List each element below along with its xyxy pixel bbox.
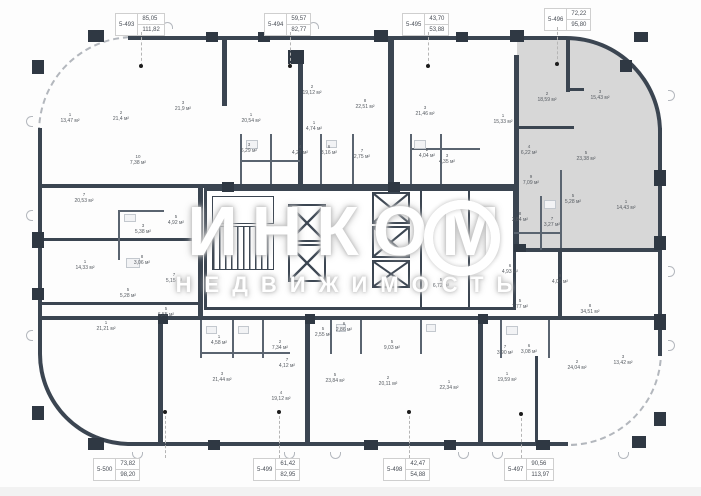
staircase-hatch <box>212 226 274 270</box>
room-area: 21,4 м² <box>99 116 143 122</box>
room-area: 4,05 м² <box>538 279 582 285</box>
vent-icon <box>330 452 341 459</box>
callout-anchor-dot <box>426 64 430 68</box>
wall-thin <box>118 210 164 212</box>
column <box>510 30 524 42</box>
column <box>222 182 234 192</box>
building-corner-top-right <box>556 36 662 132</box>
room-label: 114,33 м² <box>63 259 107 271</box>
bottom-strip <box>0 487 701 496</box>
room-label: 218,59 м² <box>525 91 569 103</box>
room-area: 7,38 м² <box>116 160 160 166</box>
room-area: 20,54 м² <box>229 118 273 124</box>
unit-total-area: 54,88 <box>406 470 429 480</box>
room-label: 74,12 м² <box>265 357 309 369</box>
room-label: 121,21 м² <box>84 320 128 332</box>
vent-icon <box>26 116 33 127</box>
unit-living-area: 43,70 <box>425 14 448 25</box>
room-label: 63,08 м² <box>507 343 551 355</box>
room-area: 20,53 м² <box>62 198 106 204</box>
bath-fixture-icon <box>238 326 249 334</box>
room-label: 120,54 м² <box>229 112 273 124</box>
room-area: 4,35 м² <box>425 159 469 165</box>
room-area: 14,43 м² <box>604 205 648 211</box>
room-label: 94,05 м² <box>538 273 582 285</box>
wall <box>38 316 660 320</box>
room-area: 21,46 м² <box>403 111 447 117</box>
column <box>478 314 488 324</box>
wall-thin <box>320 134 322 184</box>
callout-anchor-dot <box>519 412 523 416</box>
wall <box>566 40 570 92</box>
wall <box>305 320 310 446</box>
wall <box>535 356 538 446</box>
bath-fixture-icon <box>506 326 518 335</box>
room-label: 122,34 м² <box>427 379 471 391</box>
room-label: 321,46 м² <box>403 105 447 117</box>
room-area: 6,29 м² <box>227 148 271 154</box>
wall <box>158 320 163 446</box>
unit-total-area: 111,82 <box>138 25 163 35</box>
wall-thin <box>240 160 300 162</box>
callout-leader-line <box>521 418 522 458</box>
room-area: 5,28 м² <box>551 199 595 205</box>
room-area: 7,09 м² <box>509 180 553 186</box>
wall <box>38 302 198 305</box>
room-label: 419,12 м² <box>259 390 303 402</box>
callout-leader-line <box>409 416 410 458</box>
unit-callout[interactable]: 5-49459,5782,77 <box>264 13 311 36</box>
room-label: 321,9 м² <box>161 100 205 112</box>
unit-callout[interactable]: 5-49842,4754,88 <box>383 458 430 481</box>
elevator-shaft <box>288 204 326 242</box>
room-label: 113,47 м² <box>48 112 92 124</box>
wall <box>128 442 568 446</box>
unit-living-area: 59,57 <box>287 14 310 25</box>
room-label: 73,27 м² <box>530 216 574 228</box>
unit-id: 5-495 <box>403 14 425 35</box>
room-area: 3,08 м² <box>507 349 551 355</box>
room-label: 107,38 м² <box>116 154 160 166</box>
vent-icon <box>668 340 675 351</box>
room-label: 822,51 м² <box>343 98 387 110</box>
bath-fixture-icon <box>426 324 436 332</box>
room-label: 62,86 м² <box>322 321 366 333</box>
unit-id: 5-499 <box>254 459 276 480</box>
column <box>654 236 666 250</box>
room-label: 55,28 м² <box>551 193 595 205</box>
elevator-shaft <box>372 226 410 258</box>
room-area: 24,04 м² <box>555 365 599 371</box>
unit-living-area: 61,42 <box>276 459 299 470</box>
bath-fixture-icon <box>124 214 136 222</box>
unit-callout[interactable]: 5-49672,2295,80 <box>544 8 591 31</box>
wall-thin <box>514 232 560 234</box>
room-label: 27,34 м² <box>258 339 302 351</box>
room-label: 34,35 м² <box>425 153 469 165</box>
column <box>654 412 666 426</box>
room-area: 4,58 м² <box>197 340 241 346</box>
room-label: 321,44 м² <box>200 371 244 383</box>
room-label: 75,15 м² <box>152 272 196 284</box>
room-label: 14,58 м² <box>197 334 241 346</box>
unit-total-area: 113,97 <box>527 470 553 480</box>
unit-id: 5-494 <box>265 14 287 35</box>
building-corner-bottom-left <box>38 350 132 446</box>
column <box>206 32 218 42</box>
vent-icon <box>26 210 33 221</box>
unit-living-area: 72,22 <box>567 9 590 20</box>
unit-callout[interactable]: 5-49543,7053,88 <box>402 13 449 36</box>
unit-id: 5-498 <box>384 459 406 480</box>
column <box>444 440 456 450</box>
room-label: 83,06 м² <box>120 254 164 266</box>
unit-id: 5-497 <box>505 459 527 480</box>
room-label: 57,77 м² <box>498 298 542 310</box>
vent-icon <box>492 452 503 459</box>
unit-total-area: 98,20 <box>116 470 139 480</box>
column <box>32 288 44 300</box>
room-area: 19,12 м² <box>259 396 303 402</box>
room-area: 19,12 м² <box>290 90 334 96</box>
room-label: 720,53 м² <box>62 192 106 204</box>
room-label: 220,11 м² <box>366 375 410 387</box>
unit-total-area: 95,80 <box>567 20 590 30</box>
unit-total-area: 82,95 <box>276 470 299 480</box>
room-label: 46,22 м² <box>507 144 551 156</box>
column <box>654 170 666 186</box>
wall <box>514 126 574 129</box>
room-area: 6,55 м² <box>144 312 188 318</box>
room-label: 35,38 м² <box>121 223 165 235</box>
room-area: 13,47 м² <box>48 118 92 124</box>
column <box>88 30 104 42</box>
room-label: 221,4 м² <box>99 110 143 122</box>
room-label: 114,43 м² <box>604 199 648 211</box>
room-area: 18,59 м² <box>525 97 569 103</box>
elevator-shaft <box>372 260 410 288</box>
floor-plan: ИНКОМ НЕДВИЖИМОСТЬ 5-49385,05111,825-494… <box>0 0 701 496</box>
room-area: 15,43 м² <box>578 95 622 101</box>
column <box>32 232 44 248</box>
room-area: 4,74 м² <box>292 126 336 132</box>
room-area: 34,51 м² <box>568 309 612 315</box>
wall-thin <box>118 210 120 260</box>
room-area: 6,22 м² <box>507 150 551 156</box>
room-area: 23,38 м² <box>564 156 608 162</box>
unit-callout[interactable]: 5-49790,56113,97 <box>504 458 554 481</box>
room-area: 21,9 м² <box>161 106 205 112</box>
unit-callout[interactable]: 5-49961,4282,95 <box>253 458 300 481</box>
room-area: 15,33 м² <box>481 119 525 125</box>
column <box>654 314 666 330</box>
room-area: 22,51 м² <box>343 104 387 110</box>
wall-thin <box>410 134 412 184</box>
room-area: 2,75 м² <box>340 154 384 160</box>
room-area: 22,34 м² <box>427 385 471 391</box>
room-area: 7,77 м² <box>498 304 542 310</box>
room-area: 3,27 м² <box>530 222 574 228</box>
incom-logo-ring-icon <box>424 200 500 276</box>
room-label: 313,42 м² <box>601 354 645 366</box>
room-label: 72,75 м² <box>340 148 384 160</box>
column <box>305 314 315 324</box>
elevator-shaft <box>372 192 410 224</box>
vent-icon <box>668 90 675 101</box>
wall <box>198 188 203 318</box>
room-label: 97,09 м² <box>509 174 553 186</box>
room-label: 56,55 м² <box>144 306 188 318</box>
wall <box>38 184 518 188</box>
callout-anchor-dot <box>139 64 143 68</box>
wall <box>388 36 394 186</box>
column <box>208 440 220 450</box>
column <box>374 30 388 42</box>
vent-icon <box>618 452 629 459</box>
callout-anchor-dot <box>277 410 281 414</box>
room-area: 21,44 м² <box>200 377 244 383</box>
wall <box>514 248 660 252</box>
room-area: 4,12 м² <box>265 363 309 369</box>
callout-leader-line <box>279 416 280 458</box>
unit-living-area: 42,47 <box>406 459 429 470</box>
callout-leader-line <box>141 32 142 66</box>
room-area: 5,38 м² <box>121 229 165 235</box>
room-label: 523,38 м² <box>564 150 608 162</box>
room-label: 523,84 м² <box>313 372 357 384</box>
room-area: 7,34 м² <box>258 345 302 351</box>
room-label: 119,59 м² <box>485 371 529 383</box>
wall-thin <box>420 320 422 354</box>
room-area: 21,21 м² <box>84 326 128 332</box>
column <box>620 60 632 72</box>
column <box>32 60 44 74</box>
callout-leader-line <box>428 32 429 66</box>
room-label: 315,43 м² <box>578 89 622 101</box>
callout-anchor-dot <box>163 410 167 414</box>
room-area: 9,03 м² <box>370 345 414 351</box>
room-label: 56,72 м² <box>419 277 463 289</box>
room-area: 2,86 м² <box>322 327 366 333</box>
room-area: 4,93 м² <box>488 269 532 275</box>
column <box>514 244 526 252</box>
vent-icon <box>26 330 33 341</box>
callout-anchor-dot <box>407 410 411 414</box>
room-area: 3,06 м² <box>120 260 164 266</box>
room-area: 14,33 м² <box>63 265 107 271</box>
unit-living-area: 90,56 <box>527 459 553 470</box>
callout-anchor-dot <box>288 64 292 68</box>
unit-living-area: 85,05 <box>138 14 163 25</box>
vent-icon <box>668 266 675 277</box>
wall-thin <box>560 170 562 248</box>
room-area: 5,15 м² <box>152 278 196 284</box>
room-label: 64,93 м² <box>488 263 532 275</box>
vent-icon <box>458 452 469 459</box>
unit-id: 5-493 <box>116 14 138 35</box>
room-label: 224,04 м² <box>555 359 599 371</box>
column <box>32 406 44 420</box>
room-area: 5,28 м² <box>106 293 150 299</box>
elevator-shaft <box>288 244 326 282</box>
room-label: 834,51 м² <box>568 303 612 315</box>
room-label: 59,03 м² <box>370 339 414 351</box>
room-label: 14,74 м² <box>292 120 336 132</box>
room-label: 36,29 м² <box>227 142 271 154</box>
column <box>88 438 104 450</box>
room-area: 20,11 м² <box>366 381 410 387</box>
room-area: 13,42 м² <box>601 360 645 366</box>
room-area: 23,84 м² <box>313 378 357 384</box>
room-area: 6,72 м² <box>419 283 463 289</box>
bath-fixture-icon <box>206 326 217 334</box>
column <box>456 32 468 42</box>
callout-leader-line <box>557 27 558 64</box>
room-area: 19,59 м² <box>485 377 529 383</box>
column <box>632 436 646 448</box>
callout-leader-line <box>165 416 166 458</box>
stair-landing <box>212 196 274 224</box>
callout-leader-line <box>290 32 291 66</box>
callout-anchor-dot <box>555 62 559 66</box>
unit-id: 5-500 <box>94 459 116 480</box>
unit-callout[interactable]: 5-50073,8298,20 <box>93 458 140 481</box>
column <box>364 440 378 450</box>
room-label: 115,33 м² <box>481 113 525 125</box>
wall <box>478 320 483 446</box>
column <box>388 182 400 192</box>
room-label: 55,28 м² <box>106 287 150 299</box>
column <box>634 32 648 42</box>
wall <box>420 190 422 308</box>
wall-thin <box>200 352 290 354</box>
unit-living-area: 73,82 <box>116 459 139 470</box>
column <box>536 440 550 450</box>
wall <box>128 36 560 40</box>
unit-callout[interactable]: 5-49385,05111,82 <box>115 13 165 36</box>
room-label: 219,12 м² <box>290 84 334 96</box>
wall <box>222 36 227 106</box>
